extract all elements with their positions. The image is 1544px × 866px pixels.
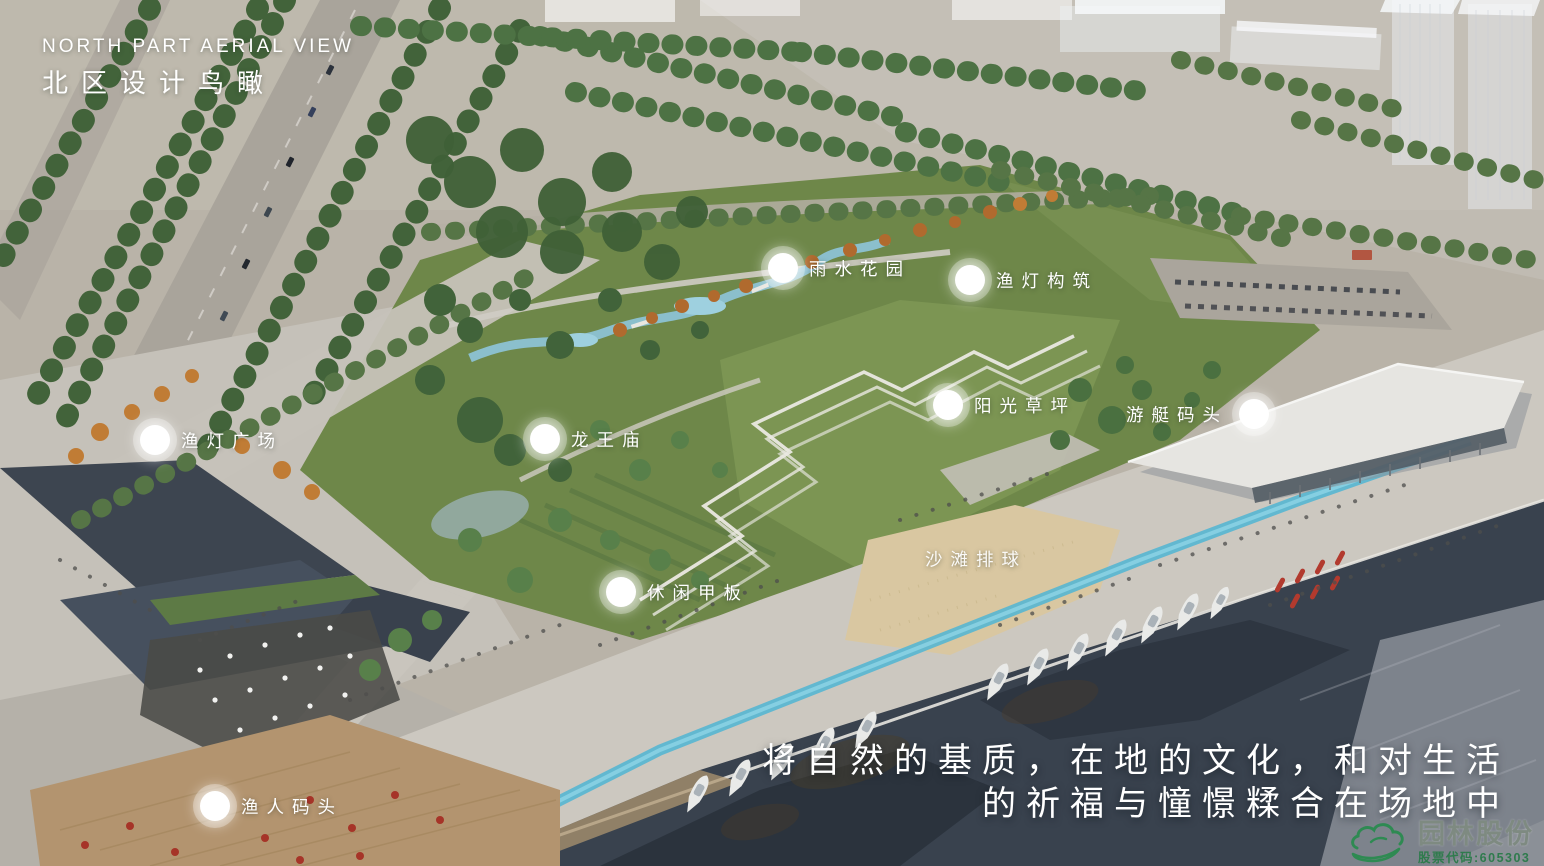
company-name: 园林股份 xyxy=(1418,821,1534,848)
callout-label: 渔灯构筑 xyxy=(996,268,1098,293)
callout-label: 休闲甲板 xyxy=(647,580,749,605)
callout-label: 雨水花园 xyxy=(809,256,911,281)
marker-dot-icon xyxy=(200,791,230,821)
callout-label: 阳光草坪 xyxy=(974,393,1076,418)
title-block: NORTH PART AERIAL VIEW 北区设计鸟瞰 xyxy=(42,36,354,100)
marker-dot-icon xyxy=(140,425,170,455)
callout-label: 渔人码头 xyxy=(241,794,343,819)
caption-line-1: 将自然的基质，在地的文化，和对生活 xyxy=(762,740,1510,783)
callout-label: 渔灯广场 xyxy=(181,428,283,453)
callout-label: 游艇码头 xyxy=(1126,402,1228,427)
callout-label: 龙王庙 xyxy=(571,427,648,452)
marker-dot-icon xyxy=(606,577,636,607)
marker-dot-icon xyxy=(768,253,798,283)
marker-dot-icon xyxy=(955,265,985,295)
callout-leisure-deck: 休闲甲板 xyxy=(606,577,749,607)
callout-sunshine-lawn: 阳光草坪 xyxy=(933,390,1076,420)
marker-dot-icon xyxy=(933,390,963,420)
callout-fishing-lamp-plaza: 渔灯广场 xyxy=(140,425,283,455)
stock-code: 股票代码:605303 xyxy=(1418,852,1534,865)
slide: NORTH PART AERIAL VIEW 北区设计鸟瞰 雨水花园 渔灯构筑 … xyxy=(0,0,1544,866)
callout-rain-garden: 雨水花园 xyxy=(768,253,911,283)
caption: 将自然的基质，在地的文化，和对生活 的祈福与憧憬糅合在场地中 xyxy=(762,740,1500,826)
callout-dragon-king-temple: 龙王庙 xyxy=(530,424,648,454)
marker-dot-icon xyxy=(1239,399,1269,429)
title-zh: 北区设计鸟瞰 xyxy=(42,63,354,100)
callout-fishermans-wharf: 渔人码头 xyxy=(200,791,343,821)
callout-label: 沙滩排球 xyxy=(925,547,1027,572)
marker-dot-icon xyxy=(530,424,560,454)
callout-beach-volleyball: 沙滩排球 xyxy=(925,547,1027,572)
callout-yacht-marina: 游艇码头 xyxy=(1126,399,1269,429)
company-logo: 园林股份 股票代码:605303 xyxy=(1347,818,1534,864)
callout-fishing-lamp-structure: 渔灯构筑 xyxy=(955,265,1098,295)
garden-cloud-logo-icon xyxy=(1347,818,1411,864)
title-en: NORTH PART AERIAL VIEW xyxy=(42,36,354,58)
logo-text: 园林股份 股票代码:605303 xyxy=(1418,821,1534,865)
